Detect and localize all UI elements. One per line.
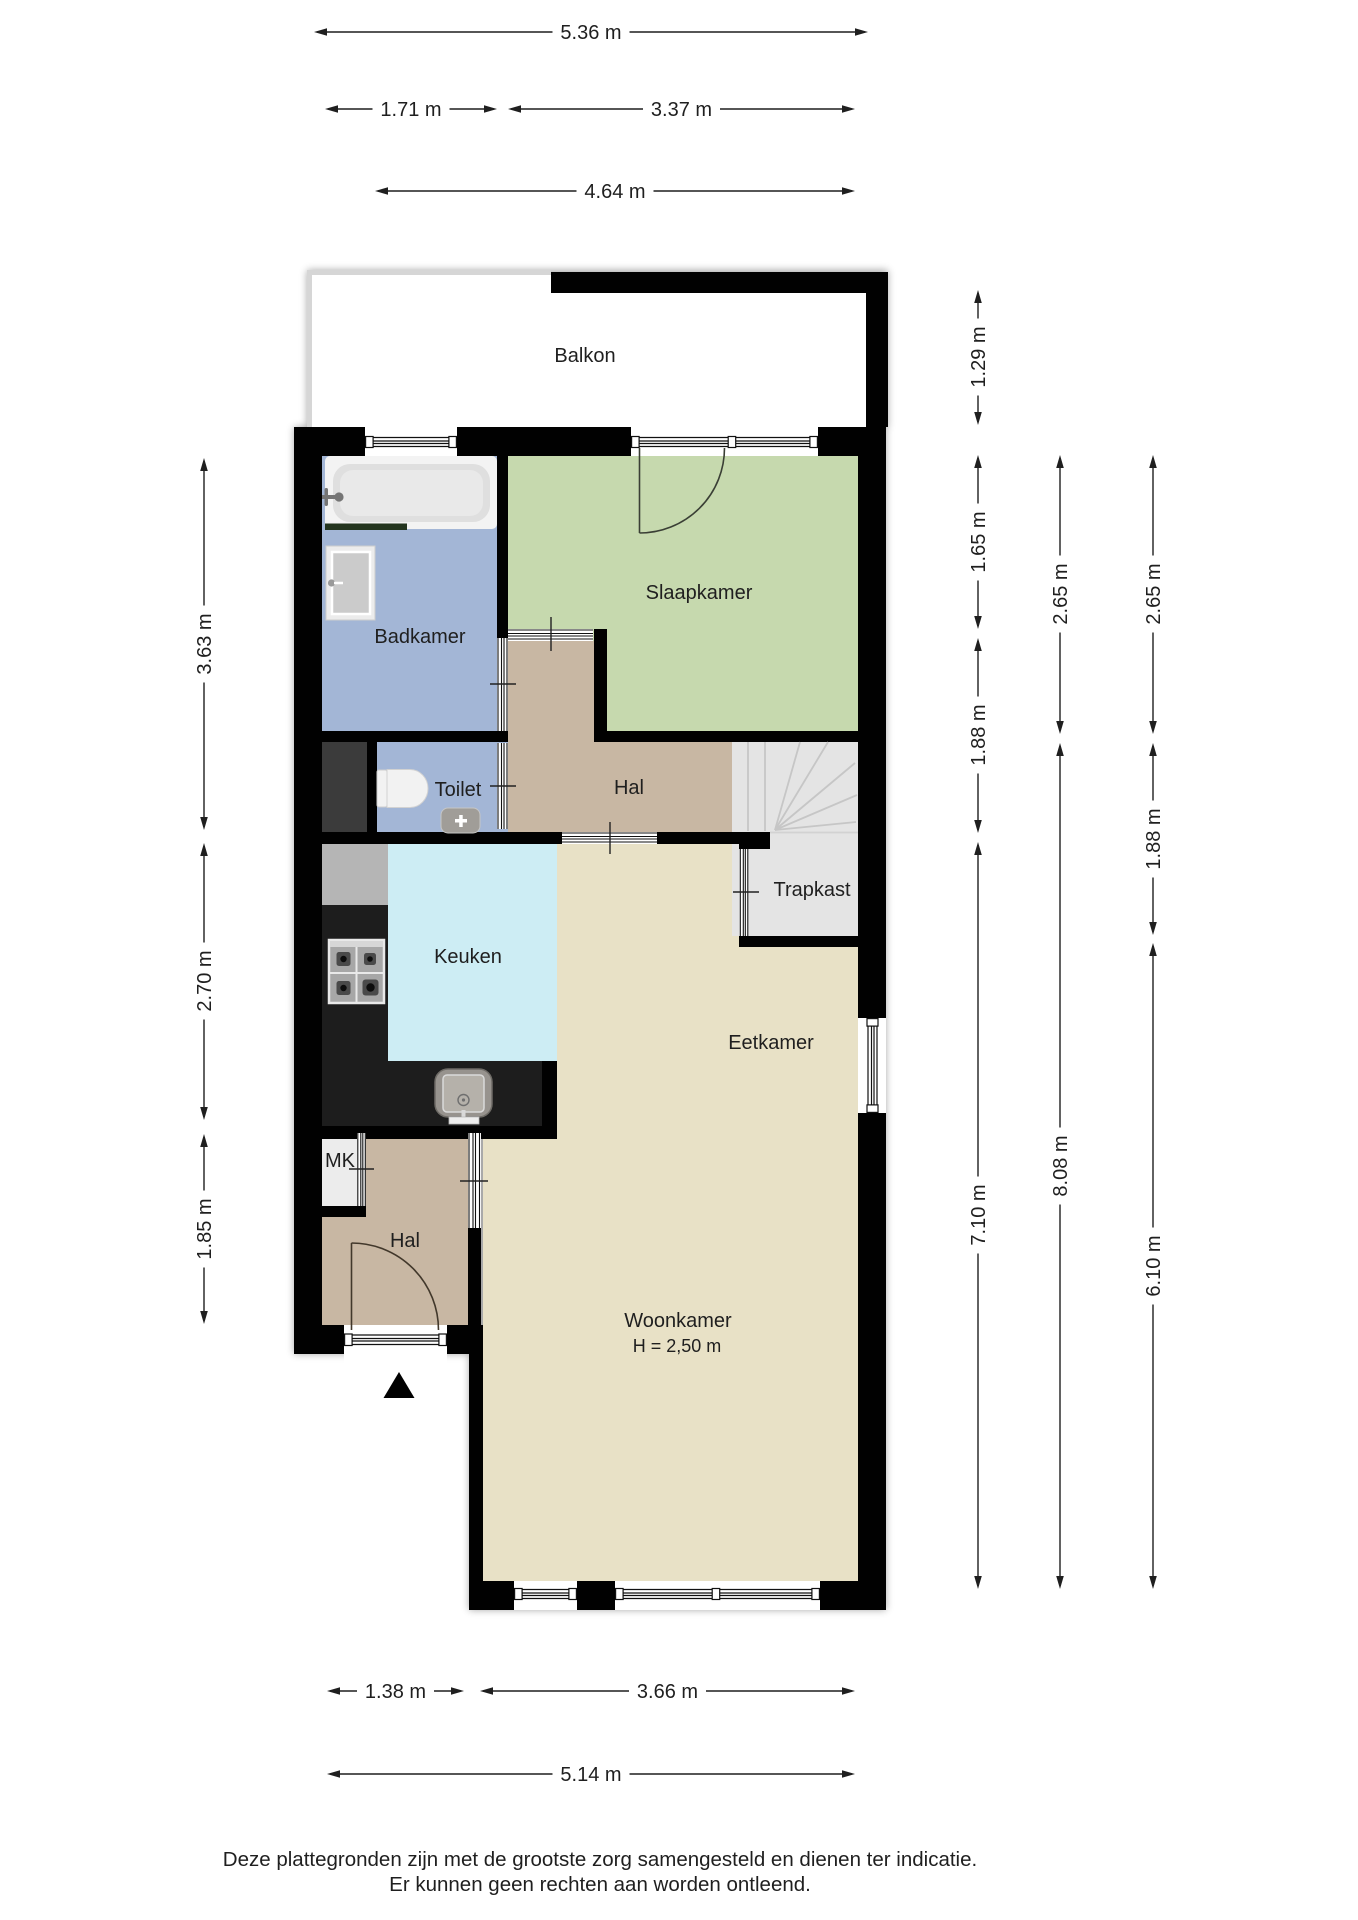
svg-text:5.36 m: 5.36 m — [560, 22, 621, 44]
svg-text:Trapkast: Trapkast — [773, 879, 851, 901]
svg-text:H = 2,50 m: H = 2,50 m — [633, 1336, 722, 1356]
svg-text:1.88 m: 1.88 m — [968, 704, 990, 765]
svg-text:2.70 m: 2.70 m — [194, 950, 216, 1011]
svg-text:MK: MK — [325, 1150, 356, 1172]
svg-text:3.37 m: 3.37 m — [651, 99, 712, 121]
svg-text:Woonkamer: Woonkamer — [624, 1310, 732, 1332]
svg-text:Eetkamer: Eetkamer — [728, 1032, 814, 1054]
svg-text:3.63 m: 3.63 m — [194, 613, 216, 674]
svg-text:1.71 m: 1.71 m — [380, 99, 441, 121]
svg-text:Balkon: Balkon — [554, 345, 615, 367]
svg-text:Hal: Hal — [614, 777, 644, 799]
svg-text:3.66 m: 3.66 m — [637, 1681, 698, 1703]
svg-text:1.29 m: 1.29 m — [968, 326, 990, 387]
svg-text:Badkamer: Badkamer — [374, 626, 465, 648]
svg-text:7.10 m: 7.10 m — [968, 1184, 990, 1245]
svg-text:2.65 m: 2.65 m — [1143, 563, 1165, 624]
svg-text:5.14 m: 5.14 m — [560, 1764, 621, 1786]
svg-text:1.38 m: 1.38 m — [365, 1681, 426, 1703]
svg-text:6.10 m: 6.10 m — [1143, 1235, 1165, 1296]
svg-text:Slaapkamer: Slaapkamer — [646, 582, 753, 604]
svg-text:1.88 m: 1.88 m — [1143, 808, 1165, 869]
svg-text:Toilet: Toilet — [435, 779, 482, 801]
svg-text:Hal: Hal — [390, 1230, 420, 1252]
svg-text:Keuken: Keuken — [434, 946, 502, 968]
svg-text:2.65 m: 2.65 m — [1050, 563, 1072, 624]
svg-text:Er kunnen geen rechten aan wor: Er kunnen geen rechten aan worden ontlee… — [389, 1873, 811, 1896]
svg-text:Deze plattegronden zijn met de: Deze plattegronden zijn met de grootste … — [223, 1848, 977, 1871]
svg-text:4.64 m: 4.64 m — [584, 181, 645, 203]
svg-text:1.85 m: 1.85 m — [194, 1198, 216, 1259]
svg-text:1.65 m: 1.65 m — [968, 511, 990, 572]
svg-text:8.08 m: 8.08 m — [1050, 1135, 1072, 1196]
